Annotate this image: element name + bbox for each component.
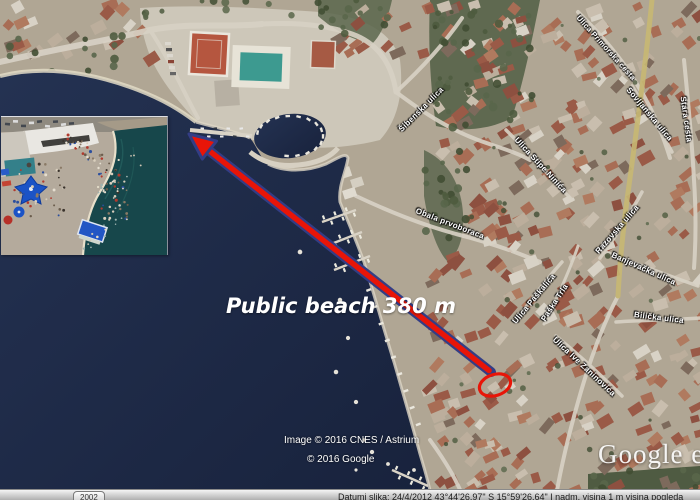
- status-info: Datumi slika: 24/4/2012 43°44'26.97" S 1…: [338, 492, 683, 500]
- status-bar: 2002 Datumi slika: 24/4/2012 43°44'26.97…: [0, 489, 700, 500]
- copyright: © 2016 Google: [307, 454, 374, 465]
- beach-photo-inset: [1, 116, 168, 255]
- inset-umbrella-red: [4, 216, 13, 225]
- imagery-credit: Image © 2016 CNES / Astrium: [284, 435, 419, 446]
- map-view: Šibenska ulica Ulica Primorska cesta Sov…: [0, 0, 700, 500]
- imagery-year-chip[interactable]: 2002: [73, 491, 105, 500]
- distance-label: Public beach 380 m: [226, 294, 456, 318]
- swimming-pool: [240, 52, 283, 81]
- google-earth-logo: Google e: [598, 439, 700, 470]
- red-court: [189, 32, 229, 76]
